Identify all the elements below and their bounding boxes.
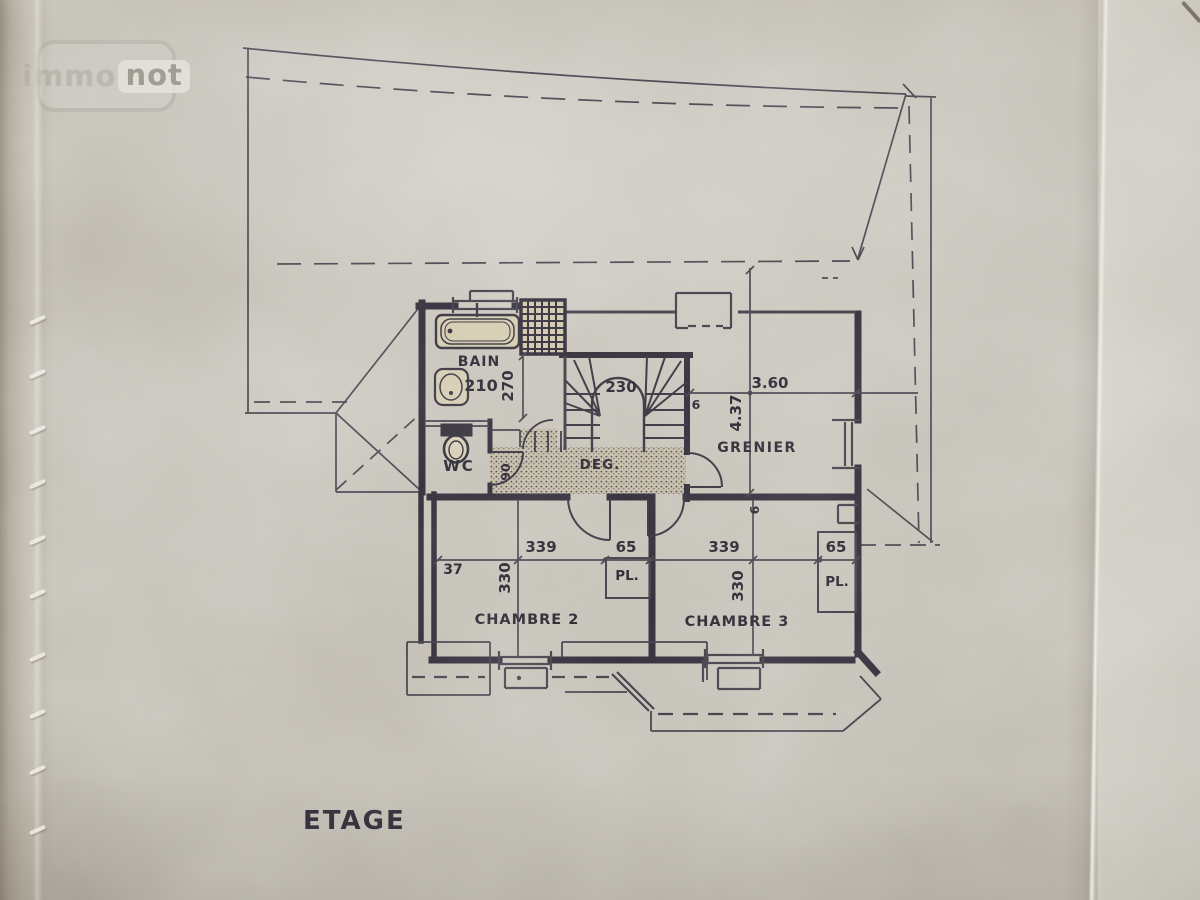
dim-chambre2-width: 339 <box>525 538 556 556</box>
room-label-deg: DEG. <box>580 457 621 473</box>
dim-bain-width: 210 <box>464 376 497 395</box>
room-label-bain: BAIN <box>458 354 500 370</box>
dim-partition: 6 <box>747 505 762 514</box>
immonot-watermark: immo not <box>36 40 176 112</box>
dim-chambre3-depth: 330 <box>729 570 747 601</box>
dim-stair-wall: 6 <box>692 397 701 412</box>
room-label-wc: WC <box>443 457 475 475</box>
room-label-placard3: PL. <box>825 574 849 590</box>
staircase-symbol <box>535 356 687 452</box>
room-label-chambre3: CHAMBRE 3 <box>685 614 790 630</box>
dim-stair-width: 230 <box>605 378 636 396</box>
dim-placard2-width: 65 <box>616 538 637 556</box>
dim-bain-depth: 270 <box>499 370 517 401</box>
plan-labels: BAIN 210 270 WC 90 DEG. 230 6 GRENIER 3.… <box>303 354 849 836</box>
dim-chambre3-width: 339 <box>708 538 739 556</box>
sink-symbol <box>435 369 468 405</box>
dim-wc-door: 90 <box>498 463 513 481</box>
floor-plan-drawing: BAIN 210 270 WC 90 DEG. 230 6 GRENIER 3.… <box>0 0 1200 900</box>
dim-left-offset: 37 <box>443 562 462 578</box>
dim-grenier-depth: 4.37 <box>727 394 745 431</box>
room-label-grenier: GRENIER <box>717 440 797 456</box>
dim-grenier-width: 3.60 <box>751 374 788 392</box>
dim-placard3-width: 65 <box>826 538 847 556</box>
floor-title: ETAGE <box>303 806 406 836</box>
watermark-text-immo: immo <box>22 59 116 93</box>
photographed-floor-plan: BAIN 210 270 WC 90 DEG. 230 6 GRENIER 3.… <box>0 0 1200 900</box>
shower-grid-symbol <box>521 300 565 354</box>
watermark-text-not: not <box>118 60 189 93</box>
dim-chambre2-depth: 330 <box>496 562 514 593</box>
room-label-chambre2: CHAMBRE 2 <box>475 612 580 628</box>
room-label-placard2: PL. <box>615 568 639 584</box>
